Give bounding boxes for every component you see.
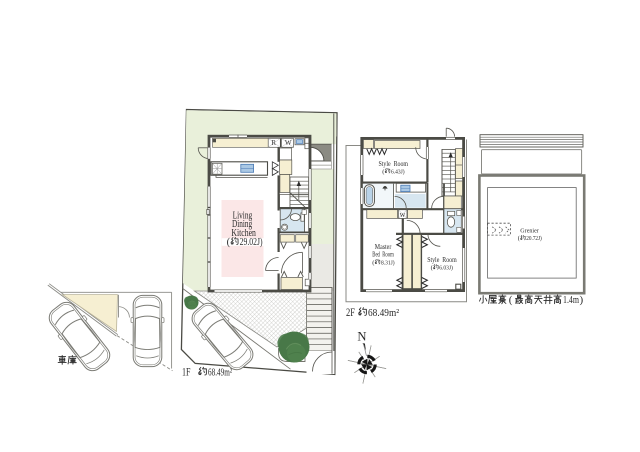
svg-text:1F: 1F [182,367,191,379]
svg-text:Bed Room: Bed Room [372,252,394,259]
svg-text:Master: Master [375,244,392,251]
svg-text:8.31J): 8.31J) [381,259,395,266]
svg-text:68.49m²: 68.49m² [368,307,400,319]
svg-text:W: W [285,139,292,147]
svg-text:(: ( [518,235,520,242]
svg-text:Style Room: Style Room [427,256,457,264]
svg-text:R: R [271,139,276,147]
svg-text:2F: 2F [346,307,355,319]
svg-text:(: ( [372,259,374,266]
svg-text:29.02J): 29.02J) [240,237,263,248]
svg-text:(: ( [382,168,384,175]
svg-text:Grenier: Grenier [520,228,539,235]
svg-text:(: ( [227,237,231,248]
svg-text:20.72J): 20.72J) [526,235,542,242]
svg-text:N: N [357,330,366,344]
svg-text:(: ( [431,265,433,272]
svg-text:(: ( [509,294,513,306]
svg-text:): ) [580,294,584,306]
svg-text:68.49m²: 68.49m² [208,367,232,379]
svg-text:1.4m: 1.4m [563,295,579,306]
svg-text:Style Room: Style Room [379,160,409,168]
svg-text:W: W [400,213,406,219]
svg-text:6.03J): 6.03J) [439,265,453,272]
svg-text:6.43J): 6.43J) [391,168,405,175]
